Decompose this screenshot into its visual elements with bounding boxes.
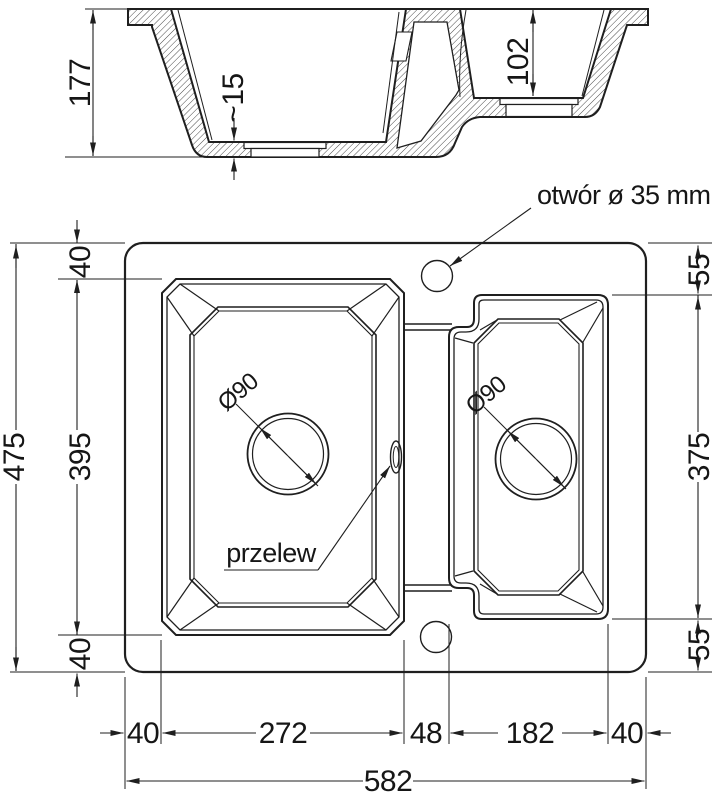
left-drain-circle [248,414,329,495]
overflow-label: przelew [226,538,317,568]
dim-left-overall: 475 [0,433,31,482]
tap-hole-top [422,261,453,292]
drain-callouts [236,404,566,489]
dim-left-bottom: 40 [64,638,97,670]
left-drain-label: Ø90 [213,368,264,417]
drawing-svg: 177 ~15 102 [0,0,715,800]
dim-left-top: 40 [64,246,97,278]
dim-width-left: 40 [127,717,159,750]
dim-overall-depth: 177 [64,59,97,108]
dim-width-overall: 582 [364,765,413,798]
right-drain-label: Ø90 [461,371,512,420]
left-drain-seat [244,143,326,158]
dim-small-bowl-depth: 102 [502,38,535,87]
tap-hole-leader [450,208,531,266]
dim-right-bowl: 375 [683,433,715,482]
dim-bottom-thickness: ~15 [217,73,250,122]
section-view: 177 ~15 102 [64,9,648,180]
right-drain-seat [500,99,578,117]
dim-width-right: 40 [611,717,643,750]
overflow-opening [391,441,402,473]
right-bowl-corner-facets [455,302,603,612]
left-bowl [162,279,404,635]
section-material [128,9,648,157]
dim-right-top: 55 [683,254,715,286]
dim-width-divider: 48 [410,717,442,750]
tap-hole-bottom [421,622,452,653]
dim-left-bowl: 395 [64,433,97,482]
right-bowl [449,295,608,619]
dim-width-left-bowl: 272 [259,717,308,750]
bowl-divider-bridge [404,324,452,591]
left-bowl-corner-facets [167,284,399,630]
dim-right-bottom: 55 [683,629,715,661]
tap-hole-label: otwór ø 35 mm [537,180,711,210]
plan-view: otwór ø 35 mm przelew Ø90 Ø90 475 40 395… [0,180,715,798]
sink-outline [125,243,646,672]
sink-technical-drawing: 177 ~15 102 [0,0,715,800]
dim-width-right-bowl: 182 [506,717,555,750]
